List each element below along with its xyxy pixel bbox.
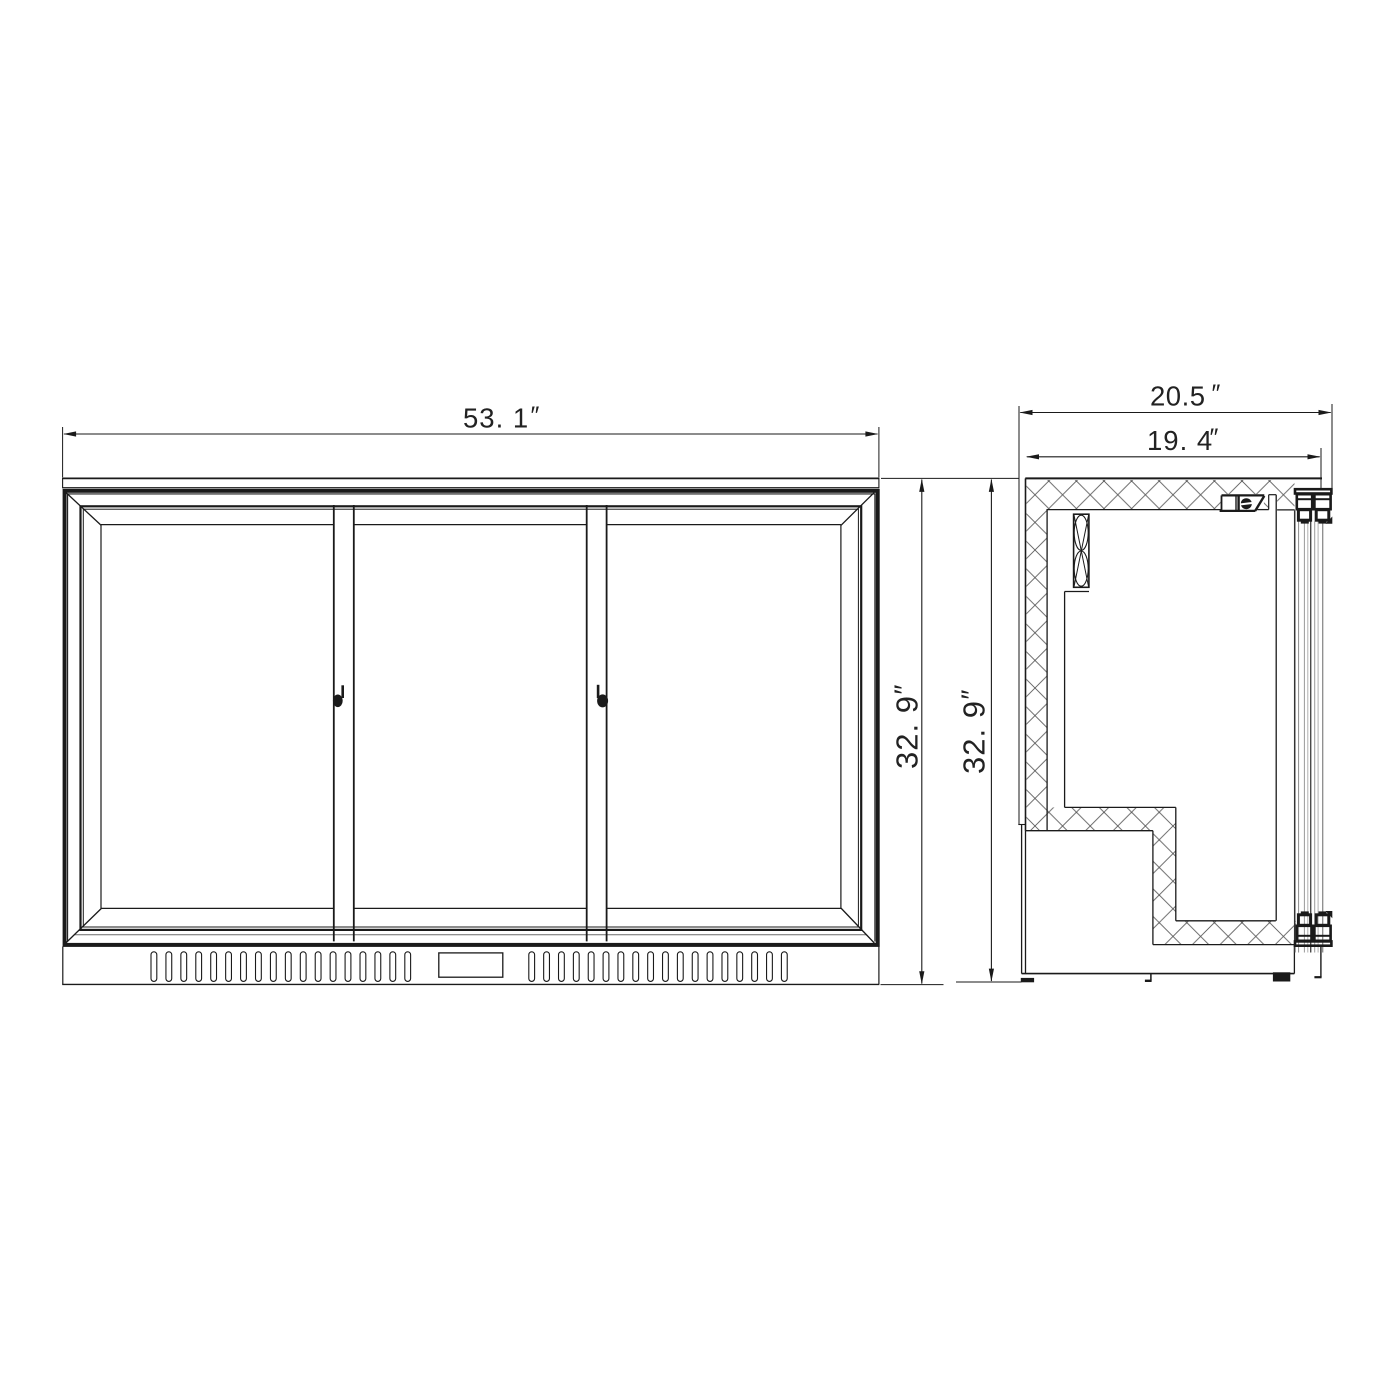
svg-text:53. 1: 53. 1 xyxy=(463,403,529,434)
svg-text:″: ″ xyxy=(955,690,986,700)
svg-text:32. 9: 32. 9 xyxy=(956,700,991,774)
svg-text:″: ″ xyxy=(1210,424,1219,452)
svg-text:19. 4: 19. 4 xyxy=(1147,425,1213,456)
svg-text:″: ″ xyxy=(1212,380,1221,408)
svg-text:32. 9: 32. 9 xyxy=(890,695,925,769)
svg-text:20.5: 20.5 xyxy=(1150,381,1206,412)
svg-text:″: ″ xyxy=(531,402,540,430)
svg-text:″: ″ xyxy=(889,685,920,695)
